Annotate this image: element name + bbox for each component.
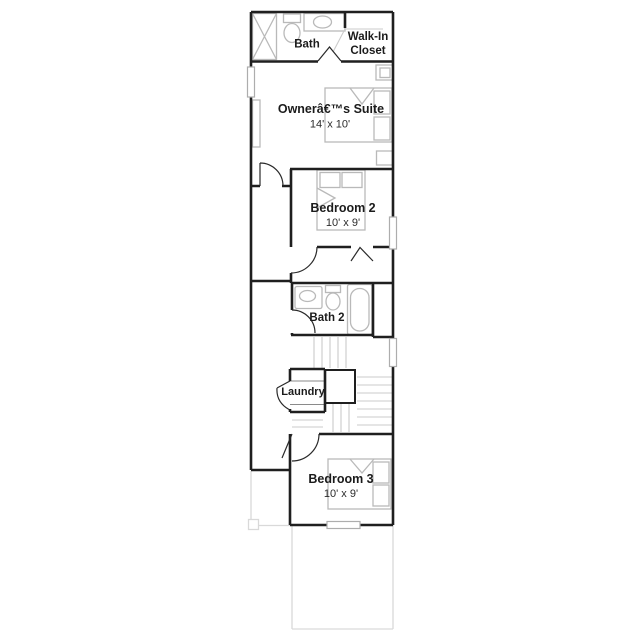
sink-icon (304, 14, 345, 32)
dresser-icon (253, 100, 261, 147)
bedroom3-window (327, 522, 360, 529)
owners-suite-window (248, 67, 255, 97)
lower-floor-outline (249, 471, 394, 629)
bedroom2-window (390, 217, 397, 249)
laundry-label: Laundry (281, 386, 325, 398)
bath-door-icon (318, 47, 341, 61)
bath-fixtures (253, 14, 346, 60)
stair-landing (325, 370, 355, 403)
floorplan-drawing: Bath Walk-In Closet Ownerâ€™s Suite 14' … (0, 0, 640, 640)
bath2-label: Bath 2 (309, 312, 344, 324)
stairwell (292, 337, 392, 432)
stair-window (390, 339, 397, 367)
bedroom2-dims: 10' x 9' (326, 217, 360, 229)
bedroom3-door-icon (282, 434, 319, 461)
bedroom2-closet-door-icon (351, 248, 373, 262)
nightstand-icon (377, 151, 393, 165)
stair-treads-upper-run (314, 337, 346, 368)
owners-suite-label: Ownerâ€™s Suite (278, 102, 384, 116)
walls (251, 12, 393, 525)
walk-in-closet-label-line1: Walk-In (348, 31, 388, 43)
stair-treads-lower-left (292, 404, 349, 432)
bedroom2-label: Bedroom 2 (310, 201, 375, 215)
shower-x-icon (253, 14, 277, 60)
sink2-icon (295, 287, 322, 309)
niche-icon (376, 65, 393, 80)
owners-suite-dims: 14' x 10' (310, 119, 350, 131)
bath-label: Bath (294, 39, 320, 51)
toilet2-icon (326, 286, 341, 311)
owners-suite-door-icon (260, 163, 283, 186)
bath2-fixtures (295, 285, 372, 335)
bedroom2-door-icon (291, 247, 317, 273)
walk-in-closet-label-line2: Closet (350, 45, 385, 57)
bedroom3-label: Bedroom 3 (308, 472, 373, 486)
bedroom3-dims: 10' x 9' (324, 488, 358, 500)
porch-post (249, 520, 259, 530)
bathtub-icon (348, 285, 373, 335)
stair-treads-right-run (357, 377, 392, 425)
floorplan-canvas: Bath Walk-In Closet Ownerâ€™s Suite 14' … (0, 0, 640, 640)
